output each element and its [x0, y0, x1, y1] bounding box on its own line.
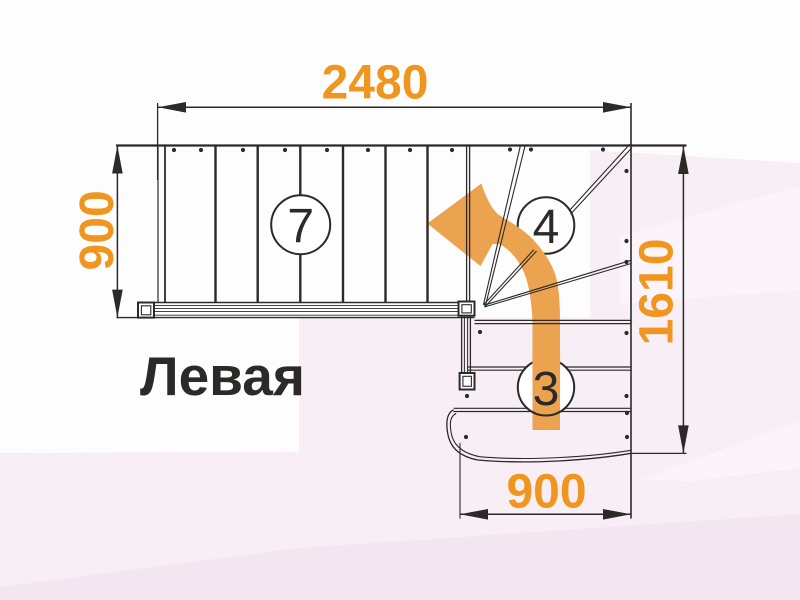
svg-text:4: 4 [533, 201, 560, 254]
svg-text:900: 900 [506, 466, 586, 519]
svg-text:7: 7 [287, 200, 314, 253]
svg-text:2480: 2480 [322, 57, 429, 110]
svg-text:1610: 1610 [631, 239, 684, 346]
svg-text:3: 3 [533, 363, 560, 416]
svg-text:Левая: Левая [140, 345, 305, 407]
svg-text:900: 900 [71, 190, 124, 270]
